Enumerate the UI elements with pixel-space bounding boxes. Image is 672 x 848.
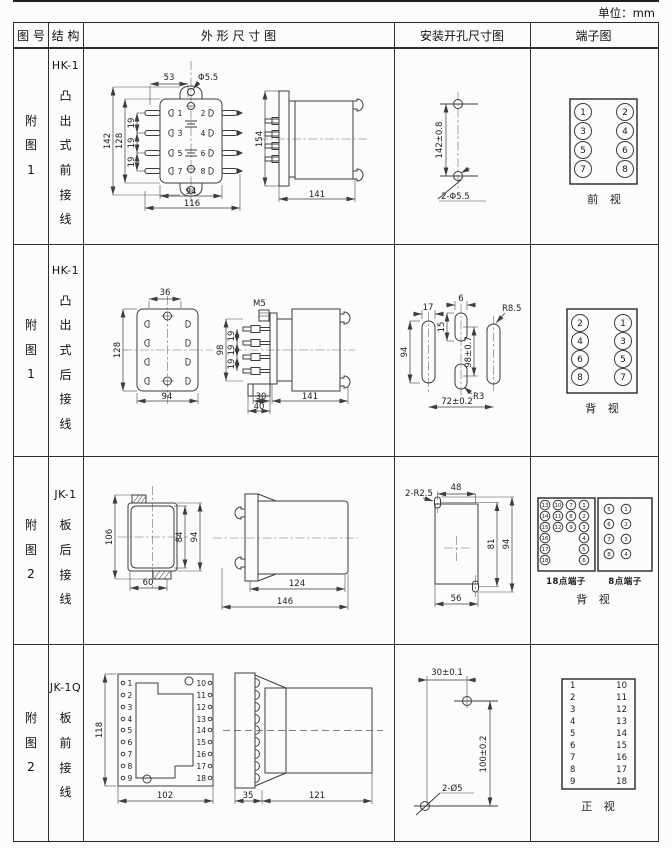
- structure-row4: JK-1Q板前接线: [48, 644, 83, 842]
- dim-label: 146: [277, 597, 293, 607]
- dim-label: 116: [184, 199, 200, 209]
- pin-number: 8: [128, 762, 133, 771]
- terminal-pins: [265, 118, 279, 163]
- dim-label: R3: [473, 392, 484, 402]
- model-label: JK-1: [54, 488, 76, 501]
- pin-number: 15: [196, 738, 206, 747]
- terminal-number: 2: [201, 109, 206, 118]
- dim-label: 106: [105, 529, 115, 545]
- header-mounting: 安装开孔尺寸图: [394, 23, 530, 47]
- terminal-number: 10: [616, 681, 627, 691]
- terminal-number: 3: [624, 537, 628, 543]
- terminal-circles-18: 13 10 7 1 14 11 8 2 15 12 9 3 16 4 17 5 …: [540, 500, 589, 565]
- terminal-number: 5: [178, 149, 183, 158]
- fig-no-row2: 附图1: [14, 244, 48, 456]
- terminal-number: 15: [616, 741, 627, 751]
- header-structure: 结 构: [48, 23, 83, 47]
- dim-label: 141: [302, 392, 318, 402]
- terminal-number: 2: [582, 514, 586, 520]
- terminal-number: 6: [577, 355, 583, 365]
- dim-label: 15: [437, 322, 447, 333]
- jk1-side-view: 124 146: [213, 494, 358, 610]
- fig-no-row3: 附图2: [14, 456, 48, 644]
- terminal-number: 18: [616, 777, 627, 787]
- terminal-number: 17: [542, 547, 549, 553]
- pin-number: 6: [128, 738, 133, 747]
- dim-label: 19: [227, 359, 237, 370]
- dim-label: M5: [253, 299, 266, 309]
- pin-number: 4: [128, 715, 133, 724]
- hk1-rear-terminal-diagram: 2 1 4 3 6 5 8 7 背 视: [530, 244, 657, 456]
- terminal-number: 7: [607, 537, 611, 543]
- dimensions: 154 141: [255, 91, 355, 202]
- jk1-outline-drawing: 106 84 94 60: [83, 456, 394, 644]
- dim-label: 40: [254, 402, 265, 412]
- dim-label: 19: [127, 138, 137, 149]
- terminal-number: 2: [622, 108, 628, 118]
- dim-label: 142: [103, 133, 113, 149]
- terminal-number: 7: [570, 753, 575, 763]
- dimensions: 118 102: [95, 674, 213, 804]
- dim-label: 19: [127, 118, 137, 129]
- structure-row3: JK-1板后接线: [48, 456, 83, 644]
- dim-label: 56: [451, 594, 462, 604]
- hk1-front-terminal-diagram: 1 2 3 4 5 6 7 8 前 视: [530, 47, 657, 244]
- dimensions: 36 128 94: [113, 288, 198, 404]
- dim-label: 94: [400, 347, 410, 358]
- header-outline-label: 外 形 尺 寸 图: [201, 27, 276, 44]
- terminal-number: 4: [570, 717, 575, 727]
- terminal-number: 18: [542, 558, 549, 564]
- dim-label: 128: [113, 342, 123, 358]
- datasheet-page: 单位：mm 图 号 结 构 外 形 尺 寸 图 安装开孔尺寸图 端子图 附图1 …: [0, 0, 672, 848]
- terminal-number: 8: [569, 514, 573, 520]
- header-mounting-label: 安装开孔尺寸图: [420, 27, 504, 44]
- pin-number: 10: [196, 679, 206, 688]
- pin-column-right: 10 11 12 13 14 15 16 17 18: [196, 679, 211, 783]
- terminal-number: 5: [580, 146, 586, 156]
- terminal-number: 8: [570, 765, 575, 775]
- structure-row2: HK-1凸出式后接线: [48, 244, 83, 456]
- hk1-front-view: 1 2 3 4 5 6 7 8: [103, 61, 243, 211]
- dim-label: 2-Ø5: [442, 783, 463, 794]
- terminal-number: 4: [201, 129, 206, 138]
- unit-label: 单位：mm: [598, 5, 655, 21]
- structure-row1: HK-1凸出式前接线: [48, 47, 83, 244]
- terminal-block-label: 8点端子: [608, 576, 641, 587]
- terminal-number: 8: [201, 167, 206, 176]
- pin-number: 5: [128, 726, 133, 735]
- pin-number: 13: [196, 715, 206, 724]
- jk1q-terminal-diagram: 1 2 3 4 5 6 7 8 9 10 11 12 13 14 15 16 1…: [530, 644, 657, 842]
- jk1q-mounting-drawing: 30±0.1 100±0.2 2-Ø5: [394, 644, 530, 842]
- terminal-number: 5: [582, 547, 586, 553]
- dim-label: 19: [227, 345, 237, 356]
- terminal-number: 1: [178, 109, 183, 118]
- terminal-number: 7: [620, 373, 626, 383]
- terminal-number: 14: [542, 514, 549, 520]
- terminal-number: 6: [582, 558, 586, 564]
- dim-label: 30: [256, 392, 267, 402]
- terminal-block-label: 18点端子: [546, 576, 586, 587]
- terminal-number: 1: [620, 319, 626, 329]
- terminal-number: 6: [201, 149, 206, 158]
- pin-number: 7: [128, 750, 133, 759]
- hk1-front-mounting-drawing: 142±0.8 2-Φ5.5: [394, 47, 530, 244]
- terminal-number: 7: [569, 503, 573, 509]
- view-caption: 前 视: [587, 192, 625, 206]
- terminal-number: 6: [570, 741, 575, 751]
- terminal-number: 2: [577, 319, 583, 329]
- fig-no-label: 附图1: [23, 313, 39, 387]
- fig-no-row1: 附图1: [14, 47, 48, 244]
- terminal-number: 4: [622, 127, 628, 137]
- terminal-number: 10: [555, 503, 562, 509]
- dim-label: 98: [216, 345, 226, 356]
- terminal-number: 5: [570, 729, 575, 739]
- hk1-rear-side-view: M5 98: [216, 299, 355, 414]
- terminal-number: 15: [542, 525, 549, 531]
- terminal-number: 4: [624, 552, 628, 558]
- terminal-number: 14: [616, 729, 627, 739]
- terminal-number: 3: [570, 705, 575, 715]
- terminal-number: 7: [178, 167, 183, 176]
- dim-label: 154: [255, 131, 265, 147]
- dim-label: R8.5: [502, 304, 521, 314]
- dim-label: 81: [487, 539, 497, 550]
- pin-column-left: 1 2 3 4 5 6 7 8 9: [121, 679, 132, 783]
- dim-label: 94: [186, 187, 197, 197]
- header-structure-label: 结 构: [52, 27, 80, 44]
- pin-number: 3: [128, 703, 133, 712]
- fig-no-row4: 附图2: [14, 644, 48, 842]
- spec-table: 图 号 结 构 外 形 尺 寸 图 安装开孔尺寸图 端子图 附图1 HK-1凸出…: [13, 22, 659, 842]
- pin-number: 12: [196, 703, 206, 712]
- pin-number: 16: [196, 750, 206, 759]
- dim-label: 128: [115, 133, 125, 149]
- dim-label: 30±0.1: [431, 668, 462, 678]
- terminal-list-right: 10 11 12 13 14 15 16 17 18: [616, 681, 627, 787]
- hk1-rear-mounting-drawing: 17 94 6 15 98±0.7 R8.5 R3 72±0.2: [394, 244, 530, 456]
- terminal-number: 8: [577, 373, 583, 383]
- dim-label: 102: [157, 791, 173, 801]
- header-outline: 外 形 尺 寸 图: [83, 23, 394, 47]
- terminal-number: 13: [542, 503, 549, 509]
- terminal-circles: 2 1 4 3 6 5 8 7: [572, 315, 632, 386]
- dimensions: 98 19 19 19 30 40 141: [216, 319, 348, 414]
- dim-label: 36: [160, 288, 171, 298]
- structure-desc: 板后接线: [58, 513, 74, 611]
- terminal-number: 6: [622, 146, 628, 156]
- jk1-mounting-drawing: 2-R2.5 48 81 94 56: [394, 456, 530, 644]
- dim-label: 35: [243, 791, 254, 801]
- dim-label: 100±0.2: [479, 736, 489, 773]
- dim-label: 19: [227, 331, 237, 342]
- terminal-number: 8: [607, 552, 611, 558]
- terminal-circles: 1 2 3 4 5 6 7 8: [575, 104, 634, 178]
- dim-label: 60: [143, 578, 154, 588]
- terminal-circles-8: 5 1 6 2 7 3 8 4: [604, 504, 631, 559]
- model-label: JK-1Q: [50, 681, 81, 694]
- terminal-list-left: 1 2 3 4 5 6 7 8 9: [570, 681, 575, 787]
- dim-label: 141: [309, 190, 325, 200]
- header-terminal-label: 端子图: [575, 27, 611, 44]
- jk1-terminal-diagram: 13 10 7 1 14 11 8 2 15 12 9 3 16 4 17 5 …: [530, 456, 657, 644]
- jk1q-outline-drawing: 1 2 3 4 5 6 7 8 9 10 11 12 13 14 15: [83, 644, 394, 842]
- hk1-rear-outline-drawing: 36 128 94 M5: [83, 244, 394, 456]
- terminal-number: 8: [622, 165, 628, 175]
- dim-label: 121: [309, 791, 325, 801]
- jk1q-front-view: 1 2 3 4 5 6 7 8 9 10 11 12 13 14 15: [95, 674, 213, 804]
- terminal-number: 9: [570, 777, 575, 787]
- dim-label: 118: [95, 722, 105, 738]
- terminal-number: 6: [607, 522, 611, 528]
- header-fig-no-label: 图 号: [17, 27, 45, 44]
- terminal-number: 1: [582, 503, 586, 509]
- structure-desc: 板前接线: [58, 706, 74, 804]
- terminal-number: 12: [616, 705, 627, 715]
- dim-label: 142±0.8: [435, 122, 445, 159]
- header-terminal: 端子图: [530, 23, 657, 47]
- terminal-number: 4: [582, 536, 586, 542]
- dim-label: 84: [175, 532, 185, 543]
- dim-label: 17: [423, 303, 434, 313]
- terminal-number: 1: [580, 108, 586, 118]
- view-caption: 正 视: [581, 799, 619, 813]
- terminal-number: 13: [616, 717, 627, 727]
- top-rule: [13, 0, 659, 2]
- jk1-rear-view: 106 84 94 60: [105, 486, 202, 591]
- dim-label: Φ5.5: [198, 73, 218, 83]
- dim-label: 6: [458, 294, 463, 304]
- structure-desc: 凸出式后接线: [58, 289, 74, 437]
- terminal-number: 16: [616, 753, 627, 763]
- terminal-number: 1: [624, 507, 628, 513]
- view-caption: 背 视: [576, 592, 614, 606]
- dim-label: 94: [190, 532, 200, 543]
- terminal-number: 5: [620, 355, 626, 365]
- dim-label: 48: [451, 483, 462, 493]
- terminal-number: 4: [577, 337, 583, 347]
- hk1-side-view: 154 141: [255, 91, 369, 202]
- hk1-rear-view: 36 128 94: [113, 288, 213, 406]
- terminal-number: 11: [555, 514, 562, 520]
- terminal-number: 7: [580, 165, 586, 175]
- header-fig-no: 图 号: [14, 23, 48, 47]
- dim-label: 53: [164, 73, 175, 83]
- model-label: HK-1: [52, 59, 79, 72]
- terminal-number: 3: [582, 525, 586, 531]
- dimensions: 53 Φ5.5 142 128 19 19 19: [103, 73, 240, 211]
- dim-label: 94: [502, 539, 512, 550]
- terminal-number: 3: [620, 337, 626, 347]
- pin-number: 9: [128, 774, 133, 783]
- terminal-number: 9: [569, 525, 573, 531]
- hk1-front-outline-drawing: 1 2 3 4 5 6 7 8: [83, 47, 394, 244]
- pin-number: 2: [128, 691, 133, 700]
- pin-number: 18: [196, 774, 206, 783]
- dim-label: 72±0.2: [441, 397, 472, 407]
- terminal-number: 2: [570, 693, 575, 703]
- terminal-number: 16: [542, 536, 549, 542]
- terminal-number: 3: [178, 129, 183, 138]
- model-label: HK-1: [52, 264, 79, 277]
- structure-desc: 凸出式前接线: [58, 84, 74, 232]
- pin-number: 11: [196, 691, 206, 700]
- pin-number: 14: [196, 726, 206, 735]
- view-caption: 背 视: [585, 401, 623, 415]
- terminal-number: 11: [616, 693, 627, 703]
- dim-label: 2-R2.5: [405, 489, 433, 499]
- pin-number: 17: [196, 762, 206, 771]
- terminal-number: 17: [616, 765, 627, 775]
- fig-no-label: 附图2: [23, 513, 39, 587]
- dimensions: 35 121: [235, 773, 372, 804]
- terminal-number: 12: [555, 525, 562, 531]
- dim-label: 98±0.7: [464, 336, 474, 367]
- fig-no-label: 附图1: [23, 109, 39, 183]
- dim-label: 19: [127, 157, 137, 168]
- jk1q-side-view: 35 121: [223, 673, 383, 804]
- dim-label: 2-Φ5.5: [441, 192, 470, 202]
- dim-label: 94: [162, 392, 173, 402]
- terminal-number: 1: [570, 681, 575, 691]
- fig-no-label: 附图2: [23, 706, 39, 780]
- dim-label: 124: [289, 579, 305, 589]
- pin-number: 1: [128, 679, 133, 688]
- terminal-number: 3: [580, 127, 586, 137]
- terminal-number: 2: [624, 522, 628, 528]
- terminal-number: 5: [607, 507, 611, 513]
